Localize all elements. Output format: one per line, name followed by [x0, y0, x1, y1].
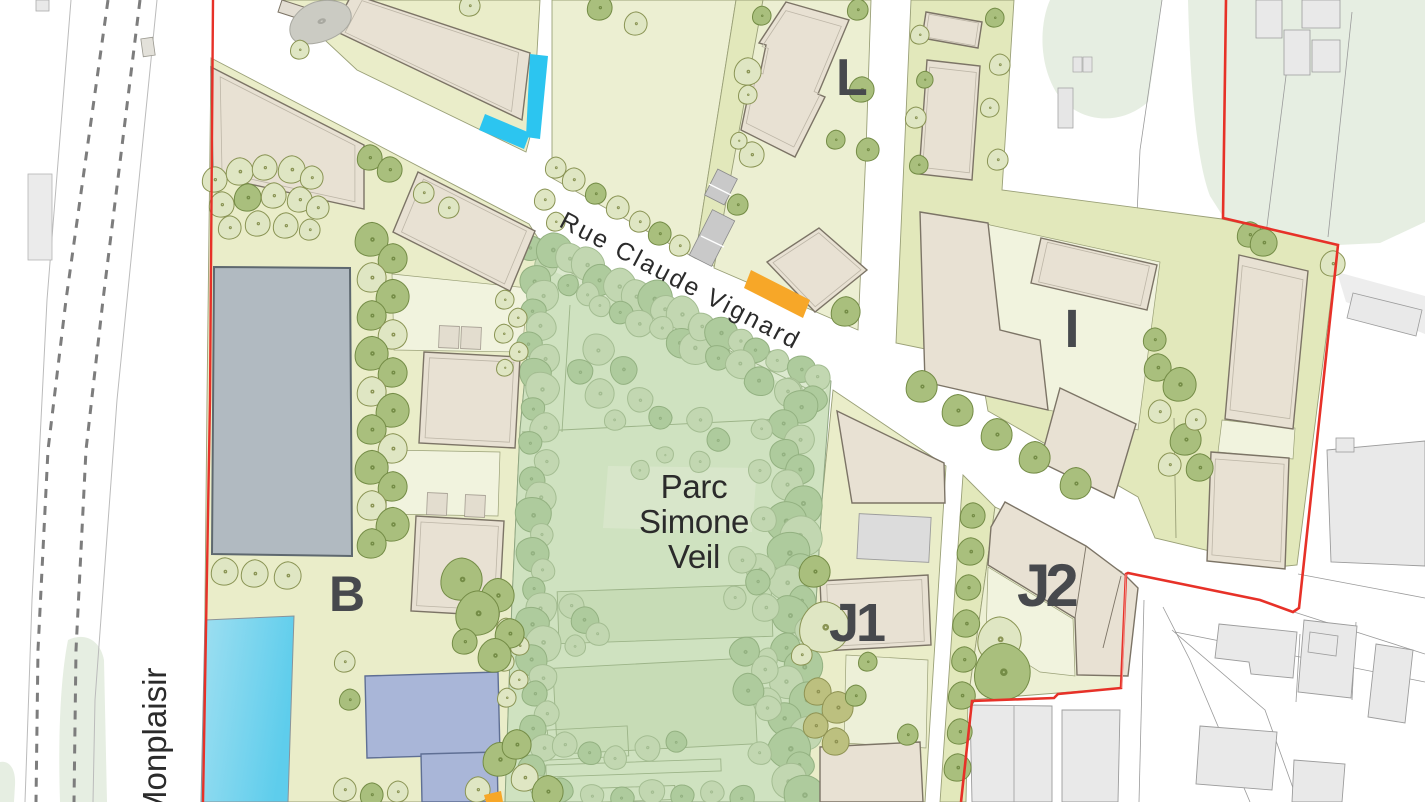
svg-text:L: L	[836, 49, 868, 107]
svg-text:Veil: Veil	[668, 538, 720, 575]
svg-text:Parc: Parc	[661, 468, 728, 505]
svg-text:J2: J2	[1017, 552, 1076, 619]
svg-text:B: B	[329, 566, 365, 622]
svg-text:J1: J1	[829, 593, 885, 653]
svg-text:Monplaisir: Monplaisir	[136, 668, 173, 802]
svg-text:Simone: Simone	[639, 503, 749, 540]
svg-text:I: I	[1064, 299, 1079, 359]
